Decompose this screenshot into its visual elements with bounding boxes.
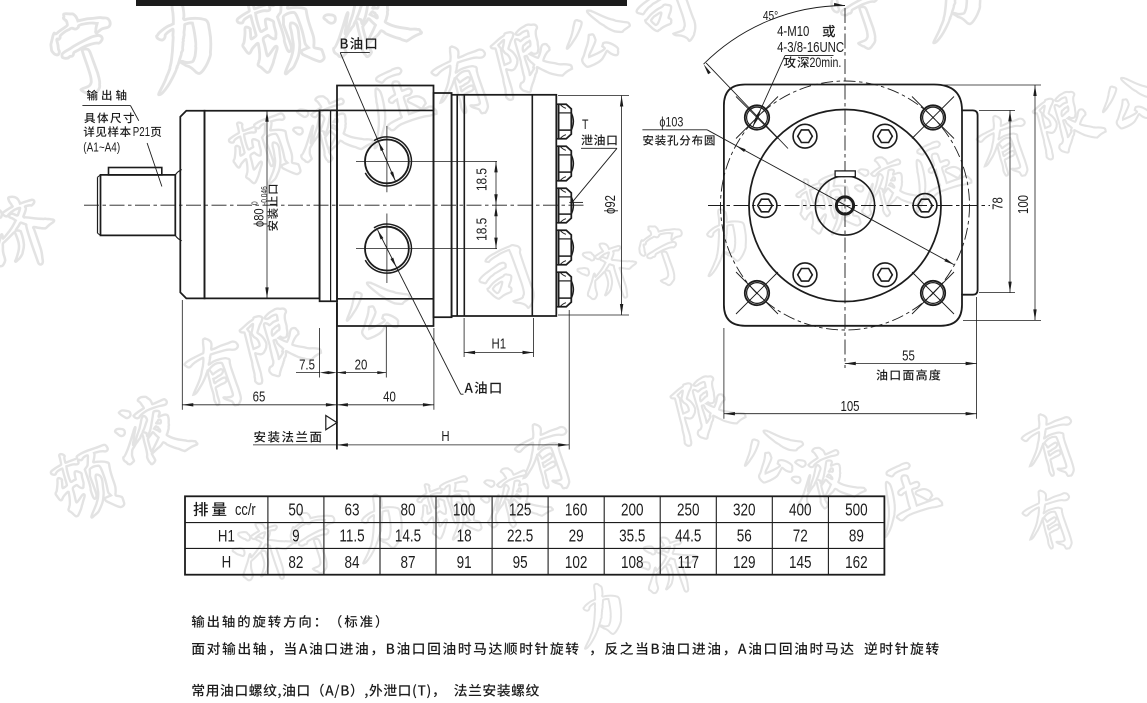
svg-text:100: 100 — [1015, 195, 1032, 214]
svg-text:56: 56 — [737, 527, 752, 546]
svg-text:65: 65 — [253, 388, 266, 405]
svg-text:20min.: 20min. — [810, 55, 842, 71]
svg-text:-0.046: -0.046 — [259, 186, 269, 205]
svg-text:H: H — [222, 553, 232, 572]
svg-text:160: 160 — [565, 501, 588, 520]
svg-text:(A1~A4): (A1~A4) — [83, 141, 120, 154]
svg-text:14.5: 14.5 — [395, 527, 421, 546]
svg-text:320: 320 — [733, 501, 756, 520]
svg-text:4-M10: 4-M10 — [777, 23, 809, 40]
svg-text:50: 50 — [288, 501, 303, 520]
svg-text:102: 102 — [565, 553, 588, 572]
svg-text:145: 145 — [789, 553, 812, 572]
svg-text:200: 200 — [621, 501, 644, 520]
svg-text:250: 250 — [677, 501, 700, 520]
svg-text:ϕ103: ϕ103 — [659, 114, 683, 130]
svg-text:45°: 45° — [763, 9, 778, 23]
svg-text:18: 18 — [457, 527, 472, 546]
svg-text:22.5: 22.5 — [507, 527, 533, 546]
svg-text:125: 125 — [509, 501, 532, 520]
svg-text:29: 29 — [569, 527, 584, 546]
svg-text:7.5: 7.5 — [299, 356, 315, 373]
svg-text:18.5: 18.5 — [473, 168, 490, 191]
svg-text:ϕ92: ϕ92 — [602, 195, 619, 214]
svg-text:63: 63 — [344, 501, 359, 520]
svg-text:78: 78 — [989, 197, 1006, 210]
svg-text:82: 82 — [288, 553, 303, 572]
svg-text:95: 95 — [513, 553, 528, 572]
svg-text:91: 91 — [457, 553, 472, 572]
svg-text:117: 117 — [677, 553, 699, 572]
svg-text:105: 105 — [841, 397, 860, 414]
svg-text:89: 89 — [849, 527, 864, 546]
svg-text:11.5: 11.5 — [339, 527, 364, 546]
svg-text:ϕ80: ϕ80 — [250, 208, 267, 227]
svg-text:cc/r: cc/r — [235, 502, 256, 520]
svg-text:108: 108 — [621, 553, 644, 572]
svg-text:72: 72 — [793, 527, 808, 546]
svg-text:H1: H1 — [218, 527, 235, 546]
svg-text:4-3/8-16UNC: 4-3/8-16UNC — [777, 38, 844, 55]
svg-text:84: 84 — [344, 553, 359, 572]
svg-text:H: H — [441, 428, 449, 445]
svg-text:44.5: 44.5 — [675, 527, 701, 546]
svg-text:87: 87 — [400, 553, 415, 572]
svg-text:80: 80 — [400, 501, 415, 520]
svg-text:P21: P21 — [133, 126, 150, 139]
svg-text:9: 9 — [292, 527, 300, 546]
svg-text:100: 100 — [453, 501, 476, 520]
svg-text:400: 400 — [789, 501, 812, 520]
svg-text:18.5: 18.5 — [473, 218, 490, 241]
svg-text:500: 500 — [845, 501, 868, 520]
svg-text:35.5: 35.5 — [619, 527, 645, 546]
svg-text:20: 20 — [355, 356, 368, 373]
svg-text:162: 162 — [845, 553, 868, 572]
svg-text:T: T — [582, 117, 589, 133]
svg-text:H1: H1 — [492, 335, 507, 352]
svg-text:129: 129 — [733, 553, 756, 572]
svg-text:55: 55 — [902, 347, 915, 364]
svg-text:40: 40 — [383, 388, 396, 405]
